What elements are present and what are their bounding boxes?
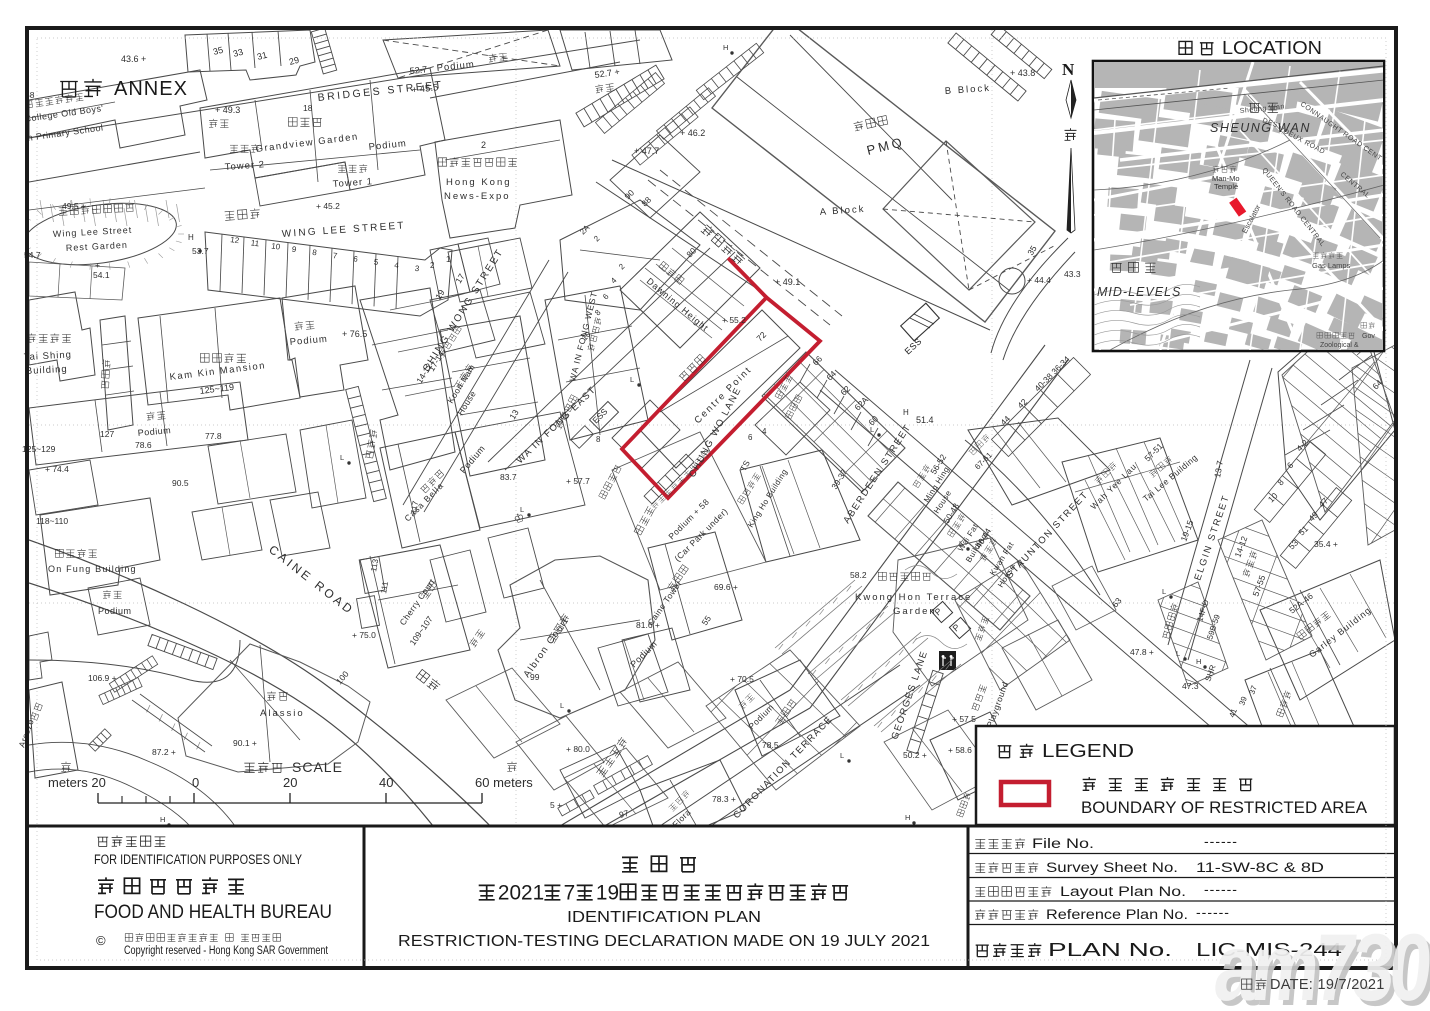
svg-text:83.7: 83.7 [500,472,517,482]
svg-text:51.4: 51.4 [916,415,934,425]
svg-text:Building: Building [26,364,68,377]
svg-text:L: L [840,751,844,760]
svg-text:RESTRICTION-TESTING DECLARATIO: RESTRICTION-TESTING DECLARATION MADE ON … [398,933,930,950]
svg-text:Copyright reserved - Hong Kong: Copyright reserved - Hong Kong SAR Gover… [124,945,329,957]
svg-text:52.7: 52.7 [409,64,427,76]
svg-text:+: + [95,260,100,270]
svg-text:1: 1 [446,255,451,264]
svg-text:Reference Plan No.: Reference Plan No. [1046,907,1188,922]
svg-text:19: 19 [596,882,619,905]
svg-text:+ 47.7: + 47.7 [634,146,659,156]
svg-text:+ 74.4: + 74.4 [45,464,69,474]
svg-text:H: H [905,813,910,822]
svg-text:47.8 +: 47.8 + [1130,647,1154,657]
svg-text:0: 0 [192,775,199,790]
svg-text:Garden: Garden [893,606,937,617]
svg-text:118~110: 118~110 [36,516,68,526]
svg-text:FOOD AND HEALTH BUREAU: FOOD AND HEALTH BUREAU [94,901,332,923]
svg-text:+ 75.0: + 75.0 [352,630,376,640]
svg-text:20: 20 [283,775,297,790]
svg-text:L: L [630,375,634,384]
svg-text:90.1 +: 90.1 + [233,738,257,748]
svg-text:L: L [1162,587,1166,596]
svg-text:+ 70.5: + 70.5 [730,674,754,684]
svg-text:Podium: Podium [98,606,132,616]
svg-text:50.2 +: 50.2 + [903,750,927,760]
svg-text:H: H [903,408,909,417]
svg-text:35.4 +: 35.4 + [1314,539,1338,549]
svg-text:8: 8 [596,435,601,444]
svg-text:18: 18 [303,103,313,113]
svg-text:+ 44.4: + 44.4 [1027,275,1051,285]
svg-text:DATE: 19/7/2021: DATE: 19/7/2021 [1270,977,1385,993]
svg-text:PLAN No.: PLAN No. [1048,939,1172,960]
svg-text:+ 49.1: + 49.1 [775,277,800,287]
svg-text:L: L [560,701,564,710]
svg-text:90.5: 90.5 [172,478,189,488]
svg-text:12: 12 [230,235,241,245]
svg-text:+ 57.5: + 57.5 [952,714,976,724]
svg-text:meters 20: meters 20 [48,775,106,790]
svg-text:127: 127 [100,429,114,439]
svg-text:LOCATION: LOCATION [1222,38,1322,58]
svg-text:10: 10 [271,241,282,251]
svg-text:49.5 +: 49.5 + [62,201,86,211]
svg-text:ANNEX: ANNEX [114,78,188,100]
svg-text:Temple: Temple [1214,182,1238,191]
svg-text:69.6 +: 69.6 + [714,582,738,592]
svg-text:©: © [96,933,106,948]
svg-text:77.8: 77.8 [205,431,222,441]
svg-text:58.2: 58.2 [850,570,867,580]
svg-text:6: 6 [748,433,753,442]
svg-text:L: L [340,453,344,462]
svg-text:L: L [1176,649,1180,658]
svg-text:+ 58.6: + 58.6 [948,745,972,755]
svg-text:7: 7 [564,882,576,905]
svg-text:H: H [723,43,728,52]
svg-text:106.9 +: 106.9 + [88,673,117,683]
svg-text:+ 55.2: + 55.2 [722,315,746,325]
svg-text:Gas Lamps: Gas Lamps [1312,261,1351,270]
svg-text:LEGEND: LEGEND [1042,741,1134,761]
svg-text:File No.: File No. [1032,836,1094,851]
svg-text:L: L [959,539,963,548]
svg-text:+ 45.2: + 45.2 [316,201,340,211]
svg-text:87.2 +: 87.2 + [152,747,176,757]
svg-text:Kwong Hon Terrace: Kwong Hon Terrace [855,592,972,603]
svg-text:FOR IDENTIFICATION PURPOSES ON: FOR IDENTIFICATION PURPOSES ONLY [94,852,302,867]
svg-text:78.3 +: 78.3 + [712,794,736,804]
svg-text:L: L [870,425,874,434]
svg-text:------: ------ [1204,881,1238,897]
svg-text:H: H [160,815,165,824]
svg-text:H: H [188,233,194,242]
svg-text:Survey Sheet No.: Survey Sheet No. [1046,860,1178,875]
svg-text:Alassio: Alassio [260,708,305,719]
svg-text:+ 49.3: + 49.3 [215,105,240,115]
svg-text:Zoological &: Zoological & [1320,342,1359,349]
svg-text:H: H [1196,657,1201,666]
svg-text:MID-LEVELS: MID-LEVELS [1097,285,1181,299]
svg-text:11-SW-8C & 8D: 11-SW-8C & 8D [1196,860,1324,875]
svg-text:IDENTIFICATION PLAN: IDENTIFICATION PLAN [567,909,761,926]
svg-text:2: 2 [481,140,486,150]
svg-text:L: L [520,505,524,514]
svg-text:43.3: 43.3 [1064,269,1081,279]
svg-text:BOUNDARY OF RESTRICTED AREA: BOUNDARY OF RESTRICTED AREA [1081,799,1367,817]
svg-text:60 meters: 60 meters [475,775,533,790]
svg-text:Gov: Gov [1362,333,1375,340]
svg-text:SCALE: SCALE [292,759,343,775]
svg-text:+ 43.8: + 43.8 [1010,68,1035,78]
svg-text:40: 40 [379,775,393,790]
svg-text:2021: 2021 [498,882,544,905]
svg-text:On Fung Building: On Fung Building [48,564,137,574]
svg-text:47.3: 47.3 [1182,681,1199,691]
svg-text:4: 4 [762,427,767,436]
svg-text:N: N [1062,60,1075,79]
svg-text:News-Expo: News-Expo [444,191,511,202]
svg-text:43.6 +: 43.6 + [121,54,146,64]
svg-text:+ 46.2: + 46.2 [680,128,705,138]
svg-text:+ 76.5: + 76.5 [342,329,367,339]
svg-text:+ 57.7: + 57.7 [566,476,590,486]
svg-text:78.5: 78.5 [762,740,779,750]
svg-text:am730: am730 [1210,915,1430,1011]
svg-text:Hong Kong: Hong Kong [446,177,512,188]
svg-text:5 +: 5 + [550,800,562,810]
svg-text:2: 2 [430,261,435,270]
svg-text:78.6: 78.6 [135,440,152,450]
svg-text:Layout Plan No.: Layout Plan No. [1060,884,1186,899]
svg-text:+ 80.0: + 80.0 [566,744,590,754]
svg-text:99: 99 [530,672,540,682]
svg-text:54.1: 54.1 [93,270,110,280]
svg-text:------: ------ [1204,833,1238,849]
